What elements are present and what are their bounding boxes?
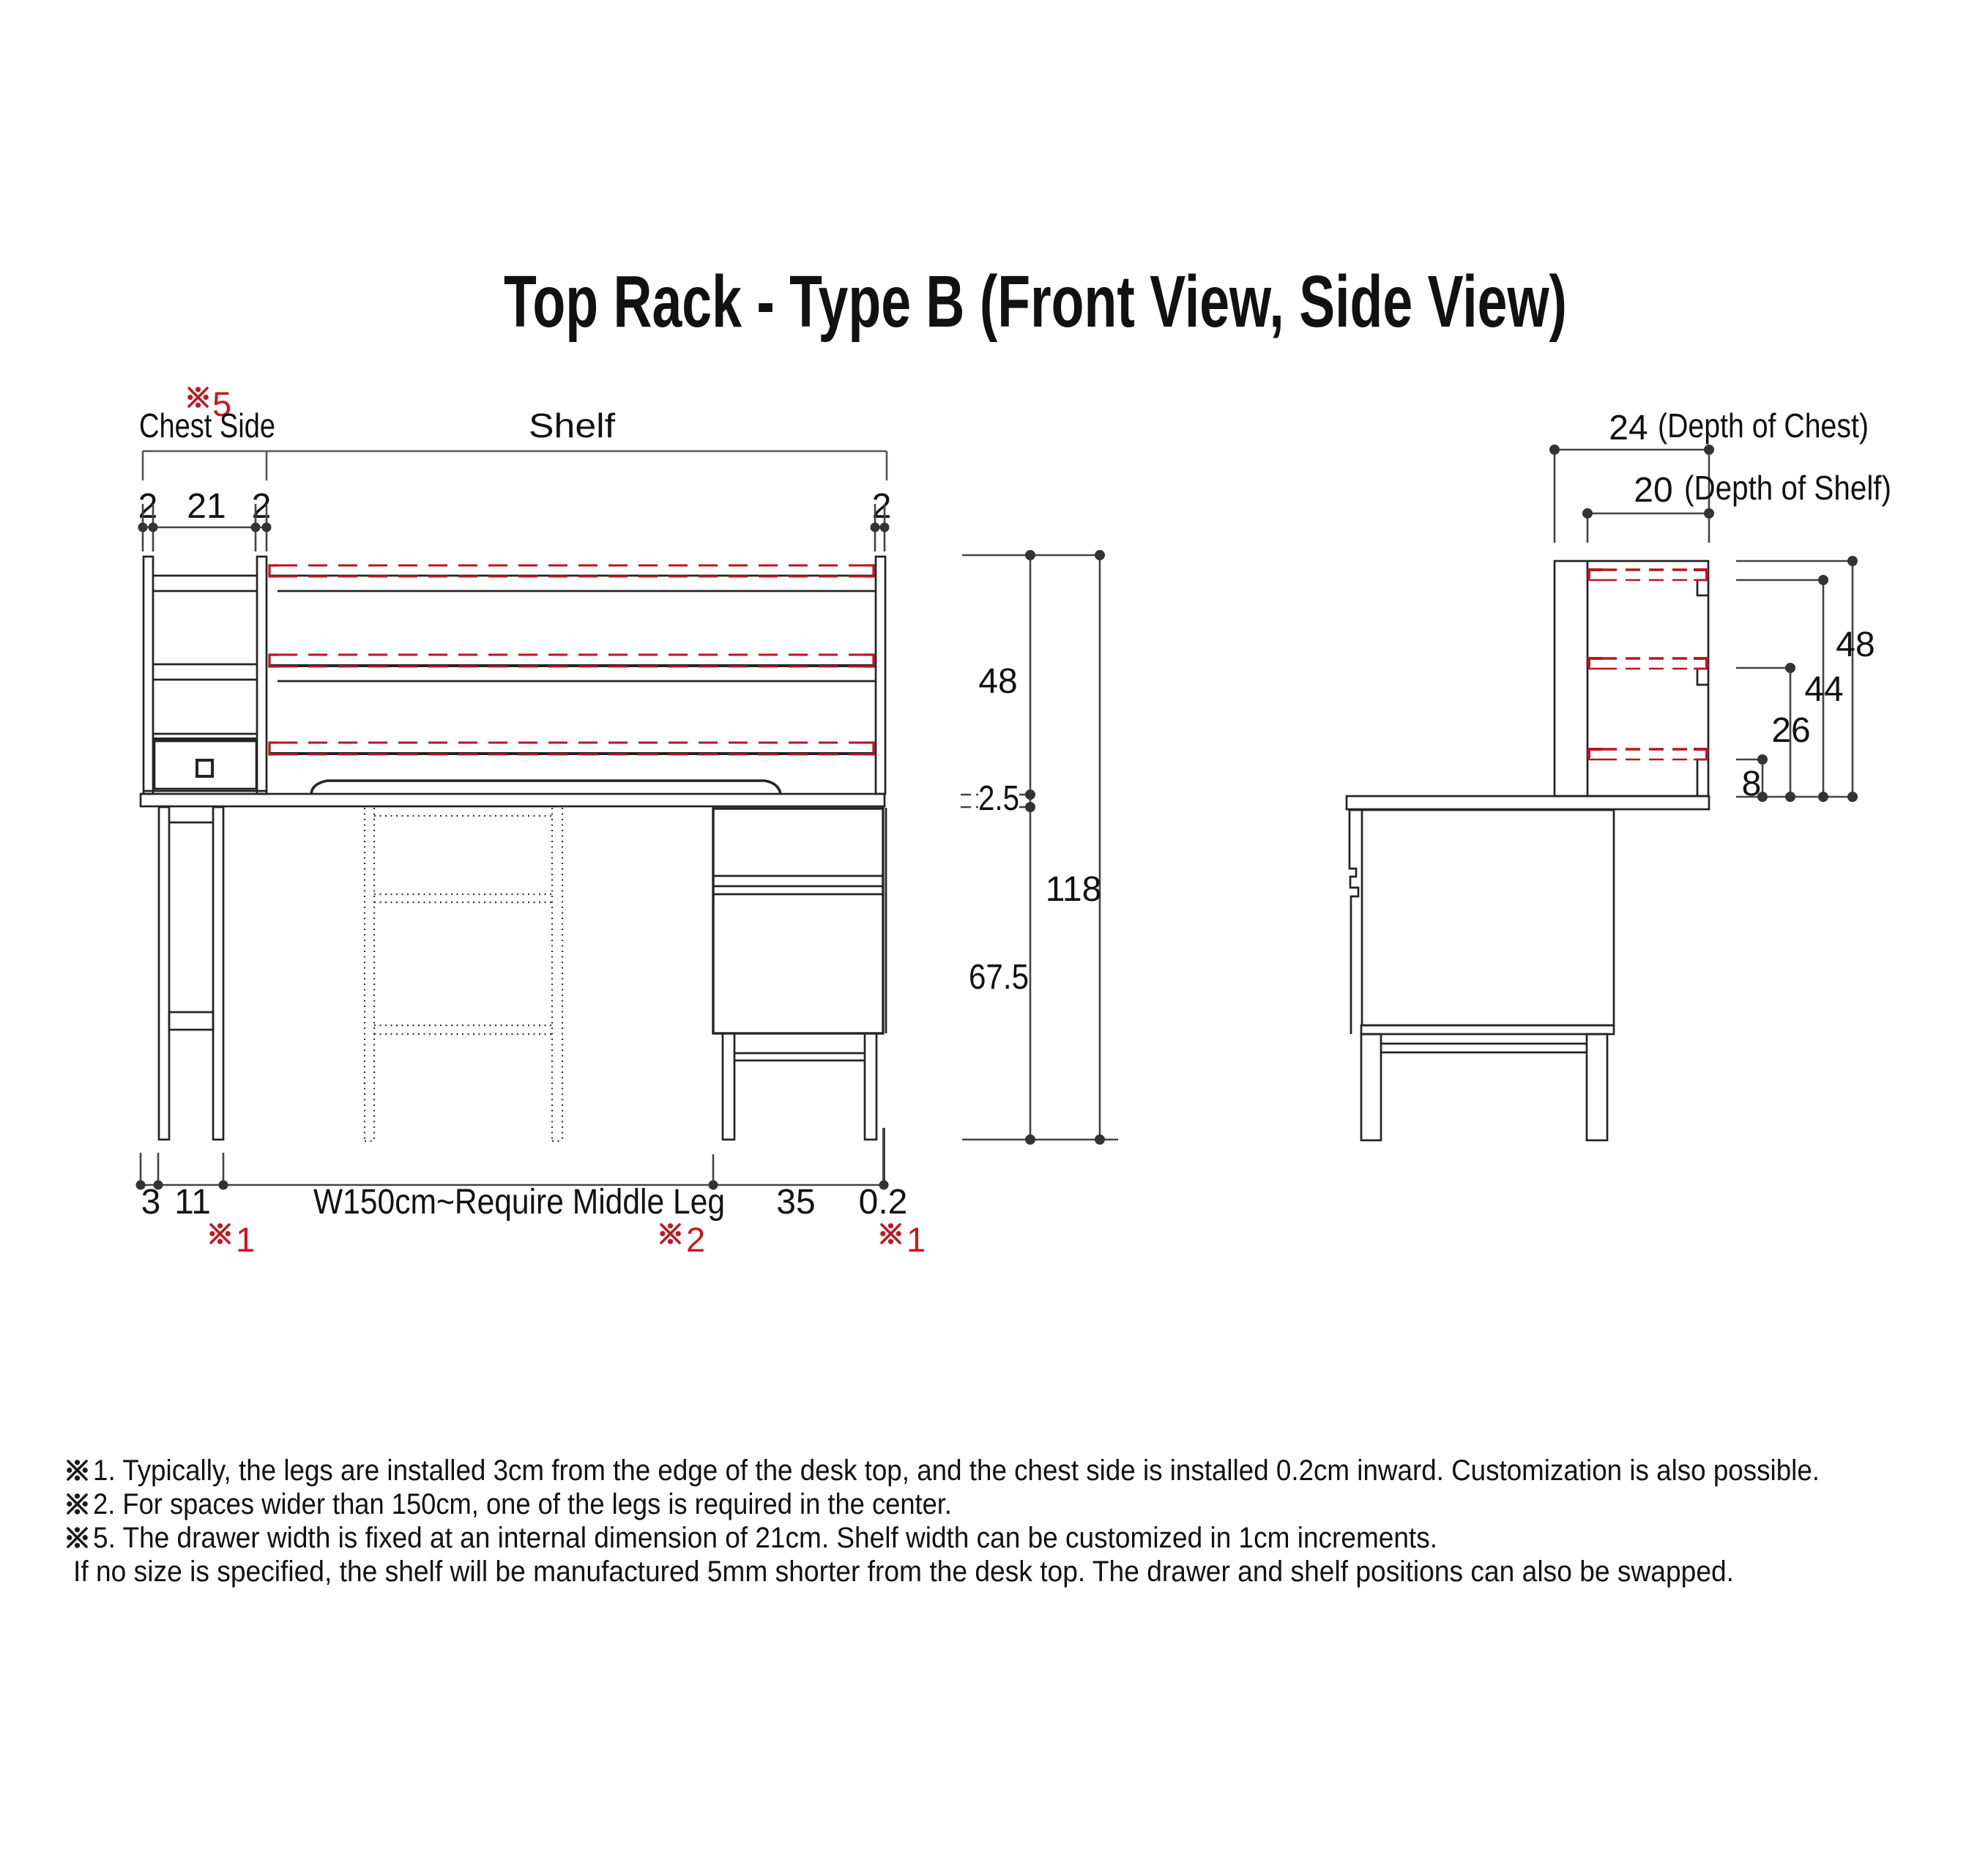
svg-text:44: 44 [1804,670,1843,709]
svg-text:If no size is specified, the s: If no size is specified, the shelf will … [73,1556,1734,1588]
svg-text:Top Rack - Type B (Front View,: Top Rack - Type B (Front View, Side View… [504,261,1567,343]
svg-text:2. For spaces wider than 150cm: 2. For spaces wider than 150cm, one of t… [93,1488,952,1520]
svg-text:118: 118 [1046,870,1102,909]
svg-text:2: 2 [252,487,272,526]
svg-text:1: 1 [906,1220,926,1259]
svg-text:W150cm~Require Middle Leg: W150cm~Require Middle Leg [313,1183,725,1222]
svg-text:Chest Side: Chest Side [139,406,275,445]
svg-text:3: 3 [141,1183,161,1222]
svg-text:8: 8 [1742,765,1762,803]
svg-text:26: 26 [1771,711,1810,750]
svg-text:11: 11 [174,1183,211,1222]
svg-text:24: 24 [1609,409,1648,447]
svg-text:Shelf: Shelf [529,406,615,445]
svg-text:(Depth of Chest): (Depth of Chest) [1658,406,1869,445]
svg-text:(Depth of Shelf): (Depth of Shelf) [1684,469,1891,507]
svg-text:1: 1 [236,1220,255,1259]
svg-text:2.5: 2.5 [978,779,1019,818]
svg-text:2: 2 [686,1220,705,1259]
svg-text:67.5: 67.5 [969,958,1029,997]
svg-text:2: 2 [138,487,158,526]
svg-text:20: 20 [1634,471,1672,510]
svg-text:35: 35 [776,1183,815,1222]
svg-text:21: 21 [187,487,226,526]
svg-text:48: 48 [1836,625,1875,664]
svg-text:0.2: 0.2 [859,1183,908,1222]
svg-text:1. Typically, the legs are ins: 1. Typically, the legs are installed 3cm… [93,1454,1820,1487]
svg-text:5. The drawer width is fixed a: 5. The drawer width is fixed at an inter… [93,1522,1437,1554]
svg-text:48: 48 [978,662,1017,701]
